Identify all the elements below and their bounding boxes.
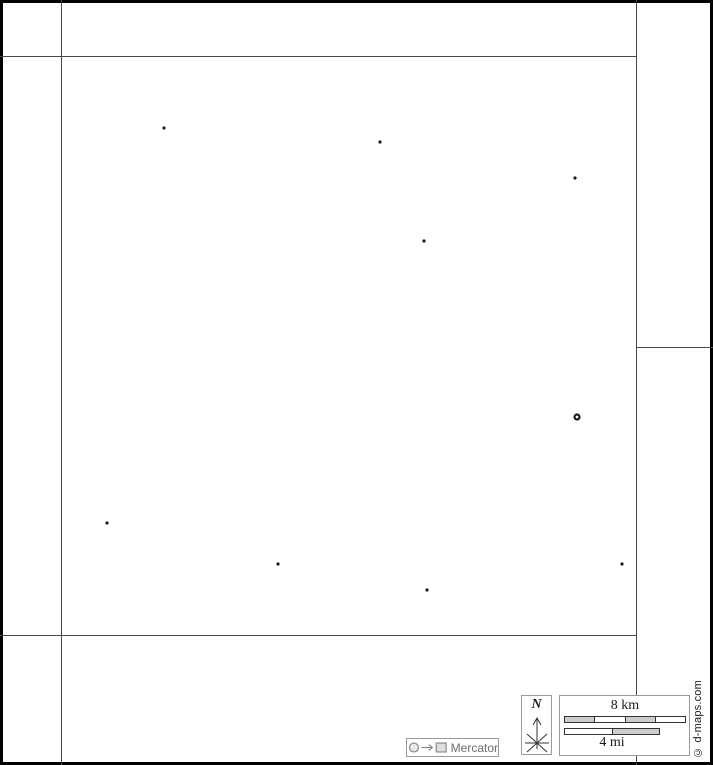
- scale-mi-label: 4 mi: [564, 735, 660, 750]
- projection-transform-icon: [407, 740, 449, 755]
- scale-segment: [612, 729, 660, 734]
- projection-box: Mercator: [406, 738, 499, 757]
- scale-segment: [594, 717, 624, 722]
- city-marker: [162, 126, 165, 129]
- city-marker: [620, 562, 623, 565]
- city-marker: [573, 176, 576, 179]
- map-canvas: N 8 km 4 mi Mercator © d-maps.com: [0, 0, 713, 765]
- copyright-text: © d-maps.com: [692, 680, 704, 758]
- city-markers-layer: [0, 0, 713, 765]
- compass-arrow-icon: [522, 715, 551, 753]
- mi-scale-bar: [564, 728, 660, 735]
- scale-box: 8 km 4 mi: [559, 695, 690, 756]
- city-marker: [105, 521, 108, 524]
- city-marker: [422, 239, 425, 242]
- scale-segment: [565, 729, 612, 734]
- scale-segment: [565, 717, 594, 722]
- capital-marker: [575, 415, 580, 420]
- city-marker: [276, 562, 279, 565]
- scale-segment: [655, 717, 685, 722]
- north-label: N: [522, 698, 551, 712]
- city-marker: [378, 140, 381, 143]
- city-marker: [425, 588, 428, 591]
- km-scale-bar: [564, 716, 686, 723]
- projection-label: Mercator: [451, 742, 498, 754]
- scale-segment: [625, 717, 655, 722]
- north-indicator-box: N: [521, 695, 552, 755]
- scale-km-label: 8 km: [565, 698, 685, 713]
